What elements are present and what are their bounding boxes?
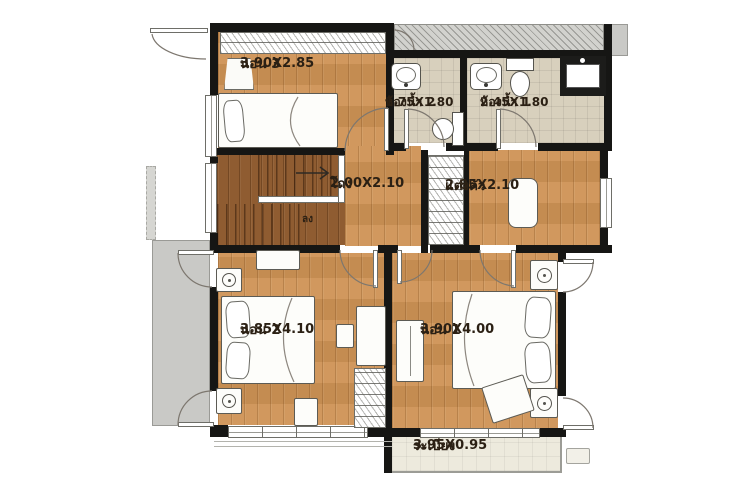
wardrobe — [220, 32, 386, 54]
closet — [428, 155, 464, 245]
nightstand — [216, 268, 242, 292]
basin — [566, 64, 600, 88]
stair-down-label: ลง — [302, 212, 313, 227]
room-size: 2.00X2.10 — [330, 176, 404, 192]
toilet-bowl — [432, 118, 454, 140]
room-size: 1.75X1.80 — [385, 94, 453, 110]
room-size: 3.95X0.95 — [413, 438, 487, 454]
wall-segment — [516, 245, 612, 253]
lamp-icon — [537, 268, 552, 283]
dresser-handle — [410, 326, 411, 376]
lamp-icon — [222, 273, 236, 287]
pillow — [225, 341, 252, 380]
room-size: 3.90X2.85 — [240, 56, 314, 72]
lamp-icon — [537, 396, 552, 411]
door-leaf — [178, 250, 214, 255]
wall-segment — [421, 150, 428, 253]
sink — [470, 63, 502, 90]
door-leaf — [563, 425, 594, 430]
nightstand — [530, 388, 558, 418]
room-size: 3.90X4.00 — [420, 322, 494, 338]
sink — [391, 63, 421, 90]
window — [205, 95, 217, 157]
door-arc — [563, 262, 593, 292]
door-leaf — [150, 28, 208, 33]
window-sill — [214, 441, 392, 447]
nightstand — [530, 260, 558, 290]
stair-railing — [258, 196, 345, 203]
door-leaf — [178, 422, 214, 427]
pillow — [524, 341, 553, 384]
shower-counter — [560, 56, 606, 96]
window-band — [420, 428, 540, 438]
room-size: 2.45X1.80 — [480, 94, 548, 110]
wall-segment — [430, 245, 480, 253]
wall-segment — [392, 428, 420, 437]
floor-plan: นอน 3 3.90X2.85 ห้องน้ำ 2 1.75X1.80 ห้อง… — [0, 0, 750, 500]
faucet-icon — [580, 58, 585, 63]
faucet-icon — [484, 83, 488, 87]
lamp-icon — [222, 394, 236, 408]
room-size: 3.85X4.10 — [240, 322, 314, 338]
door-leaf — [563, 259, 594, 264]
wall-segment — [378, 245, 398, 253]
toilet-tank — [506, 58, 534, 71]
chair — [336, 324, 354, 348]
nightstand — [216, 388, 242, 414]
door-leaf — [397, 250, 402, 284]
double-bed — [221, 296, 315, 384]
door-leaf — [373, 250, 378, 288]
side-roof-panel — [152, 240, 210, 426]
balcony-step — [566, 448, 590, 464]
window — [205, 163, 217, 233]
hall-floor — [345, 146, 421, 246]
sink-bowl-icon — [476, 67, 497, 83]
roof-hatch-strip — [394, 24, 604, 52]
wall-segment — [212, 148, 345, 155]
door-leaf — [404, 109, 409, 149]
dresser — [256, 250, 300, 270]
wall-segment — [210, 23, 218, 95]
pillow — [524, 296, 553, 339]
door-arc — [563, 398, 593, 428]
wall-segment — [464, 150, 469, 253]
window-band — [228, 426, 368, 438]
double-bed — [452, 291, 556, 389]
desk — [356, 306, 386, 366]
wall-segment — [558, 292, 566, 396]
wall-segment — [212, 23, 394, 32]
stair-treads-lower — [217, 204, 303, 245]
single-bed — [218, 93, 338, 148]
door-leaf — [496, 109, 501, 149]
door-leaf — [384, 108, 389, 151]
window — [600, 178, 612, 228]
door-leaf — [511, 250, 516, 288]
sink-bowl-icon — [396, 67, 416, 83]
wardrobe — [354, 368, 386, 428]
exterior-ledge — [146, 166, 156, 240]
bench — [294, 398, 318, 426]
room-size: 2.85X2.10 — [445, 178, 519, 194]
door-arc — [152, 34, 206, 59]
faucet-icon — [404, 83, 408, 87]
pillow — [222, 99, 246, 143]
roof-corner — [610, 24, 628, 56]
wall-segment — [210, 287, 218, 391]
